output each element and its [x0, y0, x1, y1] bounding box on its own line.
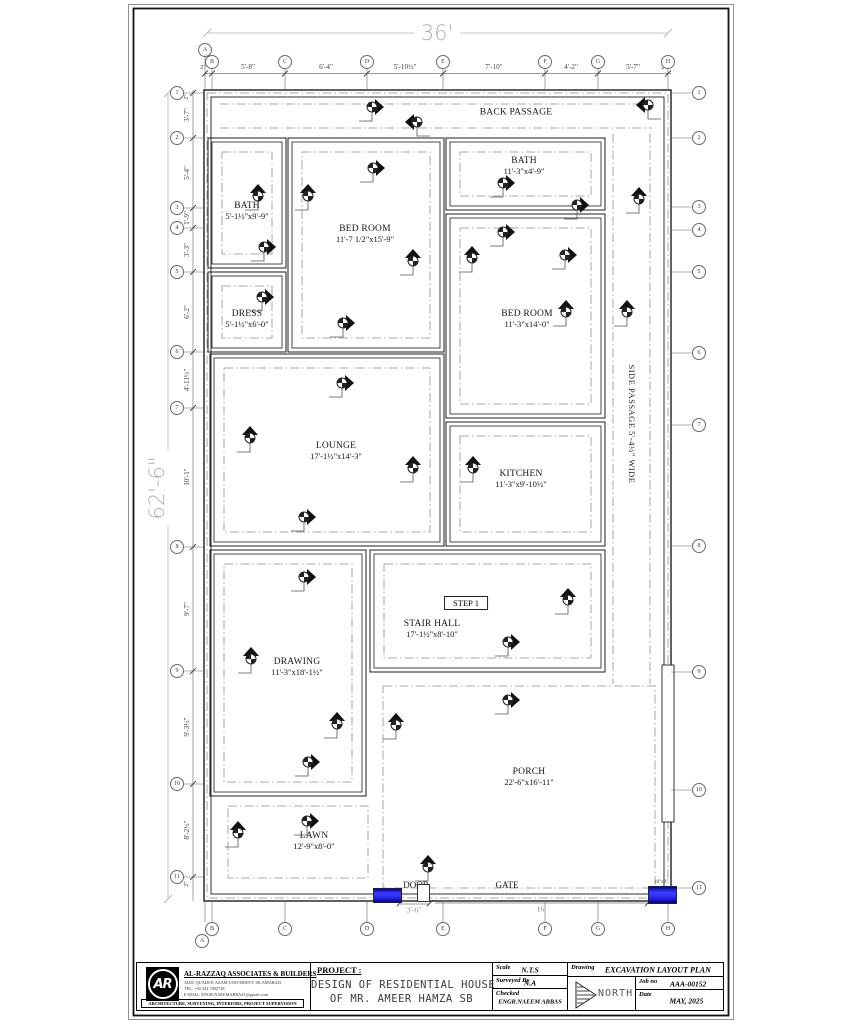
grid-bubble-right-7: 7 [692, 418, 706, 432]
north-cell: NORTH [568, 977, 636, 1010]
room-dims: 17'-1½"x8'-10" [404, 630, 460, 640]
survey-point-icon [614, 300, 635, 326]
title-block: AR AL-RAZZAQ ASSOCIATES & BUILDERS ADD: … [136, 962, 724, 1011]
drawing-value: EXCAVATION LAYOUT PLAN [605, 966, 711, 975]
room-label-bath: BATH5'-1½"x9'-9" [225, 201, 268, 221]
checked-value: ENGR.NAEEM ABBAS [498, 999, 561, 1006]
grid-bubble-left-2: 2 [170, 131, 184, 145]
overall-height-dim: 62'-6" [145, 450, 169, 525]
survey-point-icon [490, 224, 515, 246]
room-label-lawn: LAWN12'-9"x8'-0" [293, 831, 334, 851]
grid-bubble-bottom-D: D [360, 922, 374, 936]
overall-width-dim: 36' [415, 21, 460, 45]
room-dims: 17'-1½"x14'-3" [310, 452, 362, 462]
dim-top-4: 5'-10½" [394, 63, 417, 71]
surveyed-cell: Surveyed By N.A [493, 976, 567, 989]
drawing-sheet: BACK PASSAGEBATH5'-1½"x9'-9"BED ROOM11'-… [0, 0, 862, 1024]
room-dims: 12'-9"x8'-0" [293, 842, 334, 852]
room-label-bath: BATH11'-3"x4'-9" [504, 156, 545, 176]
drawing-column: Drawing EXCAVATION LAYOUT PLAN NORTH [568, 963, 723, 1010]
grid-bubble-bottom-F: F [538, 922, 552, 936]
company-phone: TEL: +92 342 7002728 [184, 986, 225, 991]
grid-bubble-right-3: 3 [692, 200, 706, 214]
grid-bubble-left-8: 8 [170, 540, 184, 554]
survey-point-icon [553, 300, 574, 326]
survey-point-icon [636, 97, 661, 119]
grid-bubble-right-2: 2 [692, 131, 706, 145]
gate-pillar-size-label: 18"x9" [654, 880, 668, 885]
dim-left-10: 8'-2½" [183, 820, 191, 839]
survey-point-icon [405, 114, 430, 136]
survey-point-icon [329, 375, 354, 397]
room-label-lounge: LOUNGE17'-1½"x14'-3" [310, 441, 362, 461]
room-dims: 11'-3"x4'-9" [504, 167, 545, 177]
dim-top-3: 6'-4" [319, 63, 333, 71]
project-name-line1: DESIGN OF RESIDENTIAL HOUSE [311, 979, 492, 991]
dim-left-1: 3'-7" [183, 108, 191, 122]
drawing-cell: Drawing EXCAVATION LAYOUT PLAN [568, 963, 723, 977]
grid-bubble-bottom-H: H [661, 922, 675, 936]
grid-bubble-left-10: 10 [170, 777, 184, 791]
wall-bed-room-1-inner [292, 142, 440, 348]
room-label-kitchen: KITCHEN11'-3"x9'-10½" [495, 469, 546, 489]
survey-point-icon [460, 456, 481, 482]
survey-point-icon [495, 634, 520, 656]
trench-line-stair-hall [384, 564, 591, 658]
grid-bubble-left-6: 6 [170, 345, 184, 359]
survey-point-icon [360, 160, 385, 182]
dim-left-8: 9'-7" [183, 602, 191, 616]
step-1-label: STEP 1 [444, 596, 488, 610]
room-dims: 11'-3"x18'-1½" [271, 668, 322, 678]
company-tagline: ARCHITECTURE, SURVEYING, INTERIORS, PROJ… [141, 999, 304, 1008]
survey-point-icon [295, 754, 320, 776]
survey-point-icon [459, 246, 480, 272]
company-name: AL-RAZZAQ ASSOCIATES & BUILDERS [184, 970, 316, 978]
grid-bubble-right-9: 9 [692, 665, 706, 679]
grid-bubble-top-D: D [360, 55, 374, 69]
company-email: E-MAIL: ENGR.NAEEMABBAS1@gmail.com [184, 992, 268, 997]
job-cell: Job no AAA-00152 [636, 977, 723, 990]
grid-bubble-left-3: 3 [170, 201, 184, 215]
company-cell: AR AL-RAZZAQ ASSOCIATES & BUILDERS ADD: … [137, 963, 311, 1010]
gate-pillar-blue [648, 886, 677, 904]
survey-point-icon [238, 647, 259, 673]
grid-bubble-top-B: B [205, 55, 219, 69]
surveyed-value: N.A [524, 978, 536, 987]
grid-bubble-left-11: 11 [170, 870, 184, 884]
door-marker-blue [373, 888, 402, 903]
page: { "plan": { "overall_top_dim": "36'", "o… [0, 0, 862, 1024]
side-passage-label: SIDE PASSAGE 5'-4½" WIDE [627, 364, 637, 483]
checked-label: Checked [496, 990, 519, 997]
room-dims: 11'-3"x9'-10½" [495, 480, 546, 490]
trench-line-bed-room-1 [302, 152, 430, 338]
scale-column: Scale N.T.S Surveyed By N.A Checked ENGR… [493, 963, 568, 1010]
boundary-pillar-strip [662, 665, 674, 822]
project-name-line2: OF MR. AMEER HAMZA SB [311, 993, 492, 1005]
room-label-porch: PORCH22'-6"x16'-11" [504, 767, 553, 787]
grid-bubble-right-6: 6 [692, 346, 706, 360]
dim-left-3: 1'-9" [183, 211, 191, 225]
grid-bubble-left-1: 1 [170, 86, 184, 100]
job-value: AAA-00152 [670, 979, 706, 988]
room-label-back-passage: BACK PASSAGE [480, 108, 553, 119]
company-logo: AR [146, 967, 179, 1001]
dim-left-7: 10'-1" [183, 468, 191, 485]
dim-left-11: 2" [184, 881, 190, 886]
survey-point-icon [249, 289, 274, 311]
survey-point-icon [295, 184, 316, 210]
plan-linework [0, 0, 862, 1024]
room-label-bed-room: BED ROOM11'-3"x14'-0" [501, 309, 552, 329]
north-arrow-icon [572, 980, 600, 1010]
date-value: MAY, 2025 [670, 997, 704, 1006]
room-label-stair-hall: STAIR HALL17'-1½"x8'-10" [404, 619, 460, 639]
survey-point-icon [383, 713, 404, 739]
room-label-drawing: DRAWING11'-3"x18'-1½" [271, 657, 322, 677]
room-label-bed-room: BED ROOM11'-7 1/2"x15'-9" [336, 224, 394, 244]
room-dims: 22'-6"x16'-11" [504, 778, 553, 788]
room-dims: 5'-1½"x6'-0" [225, 320, 268, 330]
dim-top-6: 4'-2" [564, 63, 578, 71]
grid-bubble-bottom-G: G [591, 922, 605, 936]
scale-label: Scale [496, 964, 510, 971]
grid-bubble-right-10: 10 [692, 783, 706, 797]
job-label: Job no [639, 978, 657, 985]
dim-top-7: 5'-7" [626, 63, 640, 71]
grid-bubble-top-H: H [661, 55, 675, 69]
grid-bubble-right-5: 5 [692, 265, 706, 279]
company-logo-monogram: AR [148, 969, 178, 999]
company-address: ADD: QUAID-E-AZAM UNIVERSITY ISLAMABAD [184, 980, 281, 985]
wall-stair-hall [370, 550, 605, 672]
survey-point-icon [400, 249, 421, 275]
project-label: PROJECT : [317, 965, 361, 975]
room-dims: 5'-1½"x9'-9" [225, 212, 268, 222]
survey-point-icon [490, 175, 515, 197]
survey-point-icon [400, 456, 421, 482]
scale-value: N.T.S [521, 965, 538, 974]
survey-point-icon [552, 247, 577, 269]
survey-point-icon [359, 99, 384, 121]
door-width-dim: 3'-6" [407, 906, 421, 915]
dim-left-5: 6'-2" [183, 305, 191, 319]
survey-point-icon [291, 509, 316, 531]
room-dims: 11'-3"x14'-0" [501, 320, 552, 330]
grid-bubble-bottom-A: A [195, 934, 209, 948]
grid-bubble-top-E: E [436, 55, 450, 69]
grid-bubble-top-G: G [591, 55, 605, 69]
dim-left-6: 4'-11½" [183, 369, 191, 392]
survey-point-icon [564, 197, 589, 219]
scale-cell: Scale N.T.S [493, 963, 567, 976]
dim-left-4: 3'-3" [183, 243, 191, 257]
grid-bubble-left-4: 4 [170, 221, 184, 235]
gate-post-symbol [417, 884, 430, 902]
room-label-dress: DRESS5'-1½"x6'-0" [225, 309, 268, 329]
survey-point-icon [495, 692, 520, 714]
survey-point-icon [237, 426, 258, 452]
date-cell: Date MAY, 2025 [636, 990, 723, 1010]
drawing-label: Drawing [571, 964, 594, 971]
room-dims: 11'-7 1/2"x15'-9" [336, 235, 394, 245]
boundary-wall-inner [211, 97, 664, 894]
dim-left-9: 9'-3½" [183, 717, 191, 736]
date-label: Date [639, 991, 652, 998]
survey-point-icon [415, 855, 436, 881]
grid-bubble-top-F: F [538, 55, 552, 69]
project-cell: PROJECT : DESIGN OF RESIDENTIAL HOUSE OF… [311, 963, 493, 1010]
survey-point-icon [291, 569, 316, 591]
dim-top-0: 2" [200, 65, 205, 71]
gate-width-dim: 16' [537, 905, 546, 914]
wall-stair-hall-inner [374, 554, 601, 668]
grid-bubble-right-11: 11 [692, 881, 706, 895]
grid-bubble-bottom-E: E [436, 922, 450, 936]
grid-bubble-left-9: 9 [170, 664, 184, 678]
checked-cell: Checked ENGR.NAEEM ABBAS [493, 989, 567, 1010]
grid-bubble-bottom-B: B [205, 922, 219, 936]
grid-bubble-left-7: 7 [170, 401, 184, 415]
grid-bubble-right-8: 8 [692, 539, 706, 553]
survey-point-icon [626, 187, 647, 213]
dim-top-2: 5'-8" [241, 63, 255, 71]
grid-bubble-right-4: 4 [692, 223, 706, 237]
survey-point-icon [555, 588, 576, 614]
grid-bubble-bottom-C: C [278, 922, 292, 936]
wall-bed-room-1 [288, 138, 444, 352]
north-label: NORTH [598, 988, 633, 999]
grid-bubble-left-5: 5 [170, 265, 184, 279]
grid-bubble-top-C: C [278, 55, 292, 69]
dim-left-0: 2" [184, 94, 190, 99]
room-name: BACK PASSAGE [480, 108, 553, 119]
survey-point-icon [324, 712, 345, 738]
grid-bubble-right-1: 1 [692, 86, 706, 100]
dim-left-2: 5'-4" [183, 166, 191, 180]
gate-label: GATE [496, 880, 519, 890]
survey-point-icon [330, 315, 355, 337]
dim-top-5: 7'-10" [485, 63, 502, 71]
